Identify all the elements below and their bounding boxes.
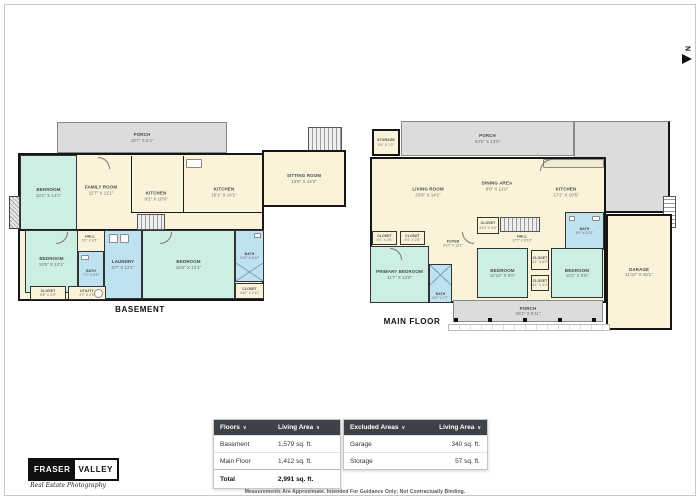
row-label: Storage	[344, 458, 426, 465]
total-value: 2,991 sq. ft.	[272, 476, 340, 483]
logo-fraser: FRASER	[30, 460, 75, 479]
chevron-down-icon: ∨	[243, 425, 247, 431]
room-dims: 4'10" X 9'10"	[240, 256, 260, 260]
basement-closet-nook	[9, 196, 20, 229]
room-dims: 6'4" X 7'0"	[378, 143, 394, 147]
column-header-label: Living Area	[439, 424, 474, 431]
table-row: Garage 340 sq. ft.	[344, 435, 487, 452]
stove-icon	[186, 159, 202, 168]
room-dims: 18'3" X 12'1"	[176, 265, 201, 270]
room-dims: 4'7" X 2'9"	[79, 293, 95, 297]
floors-table: Floors ∨ Living Area ∨ Basement 1,579 sq…	[213, 419, 341, 489]
row-label: Garage	[344, 441, 426, 448]
room-dims: 6'8" X 2'9"	[40, 293, 56, 297]
porch-post	[558, 318, 562, 322]
chevron-down-icon: ∨	[316, 425, 320, 431]
basement-title: BASEMENT	[115, 305, 165, 314]
main-bedroom-3: BEDROOM 11'5" X 9'5"	[551, 248, 603, 298]
room-dims: 10'1" X 14'1"	[36, 193, 61, 198]
north-arrow-icon	[682, 54, 692, 64]
table-row: Storage 57 sq. ft.	[344, 452, 487, 469]
floorplan-page: PORCH 43'7" X 8'4" SITTING ROOM 10'8" X …	[0, 0, 700, 500]
room-dims: 4'1" X 6'0"	[532, 260, 548, 264]
north-label: N	[684, 44, 691, 54]
toilet-icon	[254, 233, 261, 238]
table-total-row: Total 2,991 sq. ft.	[214, 469, 340, 488]
room-dims: 43'7" X 8'4"	[131, 138, 154, 143]
main-porch-top: PORCH 53'1" X 13'5"	[401, 121, 574, 156]
room-dims: 7'1" X 8'0"	[83, 273, 99, 277]
main-closet-mid-bot: CLOSET 4'1" X 4'4"	[531, 275, 549, 291]
north-indicator: N	[682, 45, 698, 75]
total-label: Total	[214, 476, 272, 483]
wall	[131, 156, 132, 213]
porch-post	[454, 318, 458, 322]
basement-bedroom-2: BEDROOM 10'5" X 12'1"	[25, 230, 78, 293]
room-dims: 10'5" X 12'1"	[39, 262, 64, 267]
main-closet-b: CLOSET 5'4" X 2'5"	[400, 231, 425, 245]
basement-bath-2: BATH 4'10" X 9'10"	[235, 230, 264, 282]
room-dims: 6'7" X 12'1"	[112, 265, 135, 270]
table-row: Basement 1,579 sq. ft.	[214, 435, 340, 452]
measurement-disclaimer: Measurements Are Approximate. Intended F…	[245, 489, 466, 495]
basement-stairs	[137, 214, 165, 230]
room-dims: 4'10" X 4'0"	[479, 226, 497, 230]
room-dims: 50'4" X 6'11"	[515, 311, 540, 316]
room-dims: 10'8" X 14'3"	[291, 179, 316, 184]
main-floor-title: MAIN FLOOR	[384, 317, 441, 326]
basement-porch: PORCH 43'7" X 8'4"	[57, 122, 227, 153]
room-dims: 11'7" X 13'0"	[387, 275, 412, 280]
row-value: 57 sq. ft.	[426, 458, 487, 465]
basement-utility: UTILITY 4'7" X 2'9"	[68, 286, 106, 300]
dryer-icon	[120, 234, 129, 243]
excluded-areas-sort-header[interactable]: Excluded Areas ∨	[344, 424, 426, 431]
basement-bedroom-1: BEDROOM 10'1" X 14'1"	[20, 155, 77, 230]
wall	[183, 156, 184, 213]
room-dims: 11'10" X 26'1"	[625, 272, 653, 277]
utility-meter-icon	[94, 289, 103, 298]
room-dims: 11'5" X 9'5"	[566, 273, 589, 278]
room-dims: 5'0" X 7'7"	[433, 296, 449, 300]
room-dims: 10'10" X 9'0"	[490, 273, 515, 278]
main-porch-bottom: PORCH 50'4" X 6'11"	[453, 300, 603, 322]
room-dims: 4'1" X 4'4"	[532, 283, 548, 287]
excluded-table-header: Excluded Areas ∨ Living Area ∨	[344, 420, 487, 435]
company-logo: FRASER VALLEY	[28, 458, 119, 481]
shower-icon	[430, 265, 451, 285]
basement-sitting-room: SITTING ROOM 10'8" X 14'3"	[262, 150, 346, 207]
chevron-down-icon: ∨	[402, 425, 406, 431]
logo-valley: VALLEY	[75, 460, 118, 479]
porch-post	[523, 318, 527, 322]
main-storage: STORAGE 6'4" X 7'0"	[372, 129, 400, 156]
row-label: Basement	[214, 441, 272, 448]
main-ensuite-bath: BATH 5'0" X 7'7"	[429, 264, 452, 303]
main-stairs	[500, 217, 540, 232]
main-closet-a: CLOSET 5'4" X 2'5"	[372, 231, 397, 245]
room-dims: 5'4" X 2'5"	[405, 238, 421, 242]
row-value: 1,579 sq. ft.	[272, 441, 340, 448]
living-area-sort-header[interactable]: Living Area ∨	[272, 424, 340, 431]
washer-icon	[109, 234, 118, 243]
living-area-sort-header[interactable]: Living Area ∨	[426, 424, 487, 431]
floors-sort-header[interactable]: Floors ∨	[214, 424, 272, 431]
basement-closet-2: CLOSET 6'8" X 2'9"	[30, 286, 66, 300]
porch-post	[592, 318, 596, 322]
main-closet-stairs: CLOSET 4'10" X 4'0"	[477, 217, 499, 234]
kitchen-counter-icon	[543, 159, 604, 168]
toilet-icon	[592, 216, 600, 221]
sink-icon	[569, 216, 575, 221]
main-bedroom-2: BEDROOM 10'10" X 9'0"	[477, 248, 528, 298]
porch-post	[488, 318, 492, 322]
room-dims: 8'0" X 5'10"	[576, 231, 594, 235]
shower-icon	[236, 263, 263, 281]
main-garage: GARAGE 11'10" X 26'1"	[606, 214, 672, 330]
wall	[131, 212, 262, 213]
room-dims: 53'1" X 13'5"	[475, 139, 500, 144]
room-dims: 5'4" X 2'5"	[377, 238, 393, 242]
column-header-label: Excluded Areas	[350, 424, 399, 431]
toilet-icon	[81, 255, 89, 260]
front-walkway	[448, 324, 610, 331]
column-header-label: Living Area	[278, 424, 313, 431]
floors-table-header: Floors ∨ Living Area ∨	[214, 420, 340, 435]
room-dims: 4'10" X 2'11"	[240, 291, 260, 295]
basement-closet-1: CLOSET 4'10" X 2'11"	[235, 283, 264, 299]
row-value: 340 sq. ft.	[426, 441, 487, 448]
column-header-label: Floors	[220, 424, 240, 431]
logo-tagline: Real Estate Photography	[30, 482, 106, 489]
main-bath: BATH 8'0" X 5'10"	[565, 212, 604, 250]
row-value: 1,412 sq. ft.	[272, 458, 340, 465]
row-label: Main Floor	[214, 458, 272, 465]
main-closet-mid-top: CLOSET 4'1" X 6'0"	[531, 250, 549, 270]
chevron-down-icon: ∨	[477, 425, 481, 431]
table-row: Main Floor 1,412 sq. ft.	[214, 452, 340, 469]
basement-bedroom-3: BEDROOM 18'3" X 12'1"	[142, 230, 235, 299]
basement-laundry: LAUNDRY 6'7" X 12'1"	[104, 230, 142, 299]
excluded-areas-table: Excluded Areas ∨ Living Area ∨ Garage 34…	[343, 419, 488, 470]
